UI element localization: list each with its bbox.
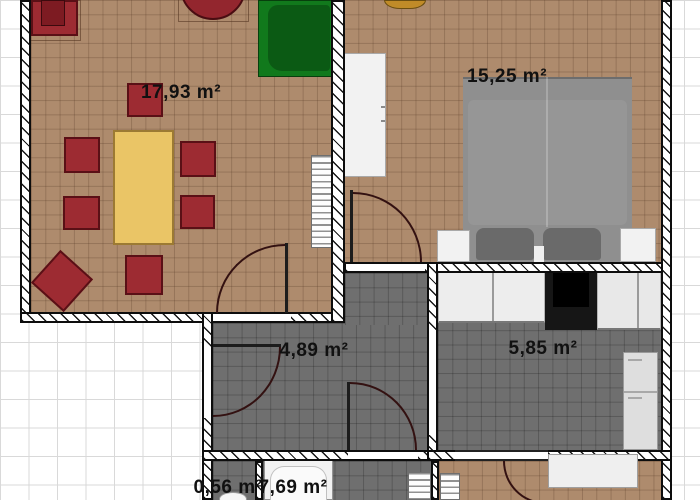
bedroom-area-label: 15,25 m² (467, 66, 547, 88)
dining-chair (180, 195, 215, 229)
kitchen-window (455, 450, 548, 461)
bathroom-door-opening (348, 450, 418, 461)
counter-divider (492, 267, 494, 321)
living-bedroom-wall (331, 0, 345, 323)
wardrobe-handle (381, 120, 385, 122)
dining-chair (63, 196, 100, 230)
armchair-seat (41, 0, 65, 26)
kitchen-opening (427, 330, 438, 435)
nightstand (437, 230, 470, 262)
floor-plan: 17,93 m² 15,25 m² 4,89 m² 5,85 m² 0,56 m… (0, 0, 700, 500)
hallway-floor-extension (345, 273, 427, 325)
closet-area-label: 0,56 m² (194, 477, 263, 499)
bed-pillow (543, 228, 601, 260)
bathroom-area-label: 7,69 m² (259, 477, 328, 499)
hallway-area-label: 4,89 m² (280, 340, 349, 362)
fridge (623, 352, 658, 450)
bed-pillow (476, 228, 534, 260)
exterior-wall-right (661, 0, 672, 500)
sofa-green-cushion (268, 5, 330, 71)
dining-chair (64, 137, 100, 173)
living-room-area-label: 17,93 m² (141, 82, 221, 104)
kitchen-counter-left (438, 266, 545, 323)
dining-chair (125, 255, 163, 295)
bathroom-radiator (408, 472, 431, 500)
living-room-door-leaf (285, 243, 288, 313)
kitchen-counter-right (597, 266, 661, 330)
stove-top (553, 269, 589, 307)
living-room-south-wall (20, 312, 345, 323)
bathroom-corridor-wall (431, 461, 439, 500)
exterior-wall-left (20, 0, 31, 323)
wardrobe-handle (381, 106, 385, 108)
living-room-radiator (311, 155, 332, 248)
wardrobe (344, 53, 386, 177)
dining-table (113, 130, 174, 245)
bed-center-seam (546, 77, 548, 227)
bedroom-door-opening (350, 262, 425, 273)
kitchen-area-label: 5,85 m² (509, 338, 578, 360)
corridor-radiator (440, 473, 460, 500)
dining-chair (180, 141, 216, 177)
bed-gap (534, 246, 544, 262)
entrance-door-opening (202, 347, 213, 418)
nightstand (620, 228, 656, 262)
counter-divider (637, 267, 639, 328)
living-room-door-opening (213, 312, 291, 323)
sideboard (548, 454, 638, 488)
